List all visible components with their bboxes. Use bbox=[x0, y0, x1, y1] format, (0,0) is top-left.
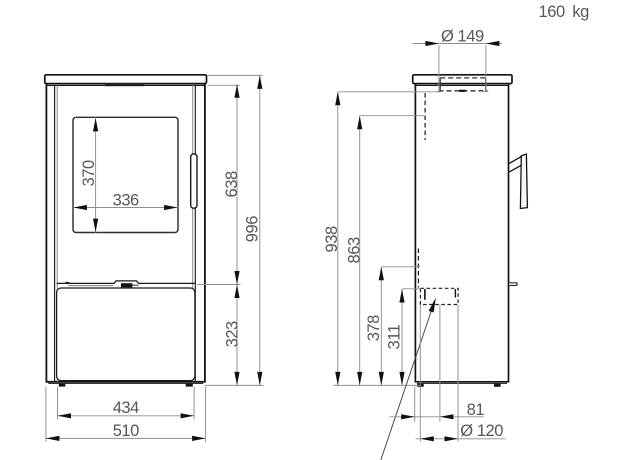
svg-text:160 kg: 160 kg bbox=[539, 3, 590, 21]
svg-text:638: 638 bbox=[223, 171, 241, 197]
svg-text:938: 938 bbox=[323, 226, 341, 252]
svg-text:370: 370 bbox=[80, 160, 98, 186]
svg-text:378: 378 bbox=[365, 315, 383, 341]
svg-text:81: 81 bbox=[467, 401, 485, 419]
svg-text:Ø 120: Ø 120 bbox=[460, 422, 503, 440]
svg-text:336: 336 bbox=[113, 191, 139, 209]
svg-text:434: 434 bbox=[113, 399, 139, 417]
svg-text:Ø 149: Ø 149 bbox=[441, 28, 484, 46]
svg-text:996: 996 bbox=[244, 216, 262, 242]
svg-text:863: 863 bbox=[346, 237, 364, 263]
svg-text:323: 323 bbox=[224, 321, 242, 347]
svg-text:510: 510 bbox=[113, 422, 139, 440]
svg-text:311: 311 bbox=[386, 324, 404, 349]
